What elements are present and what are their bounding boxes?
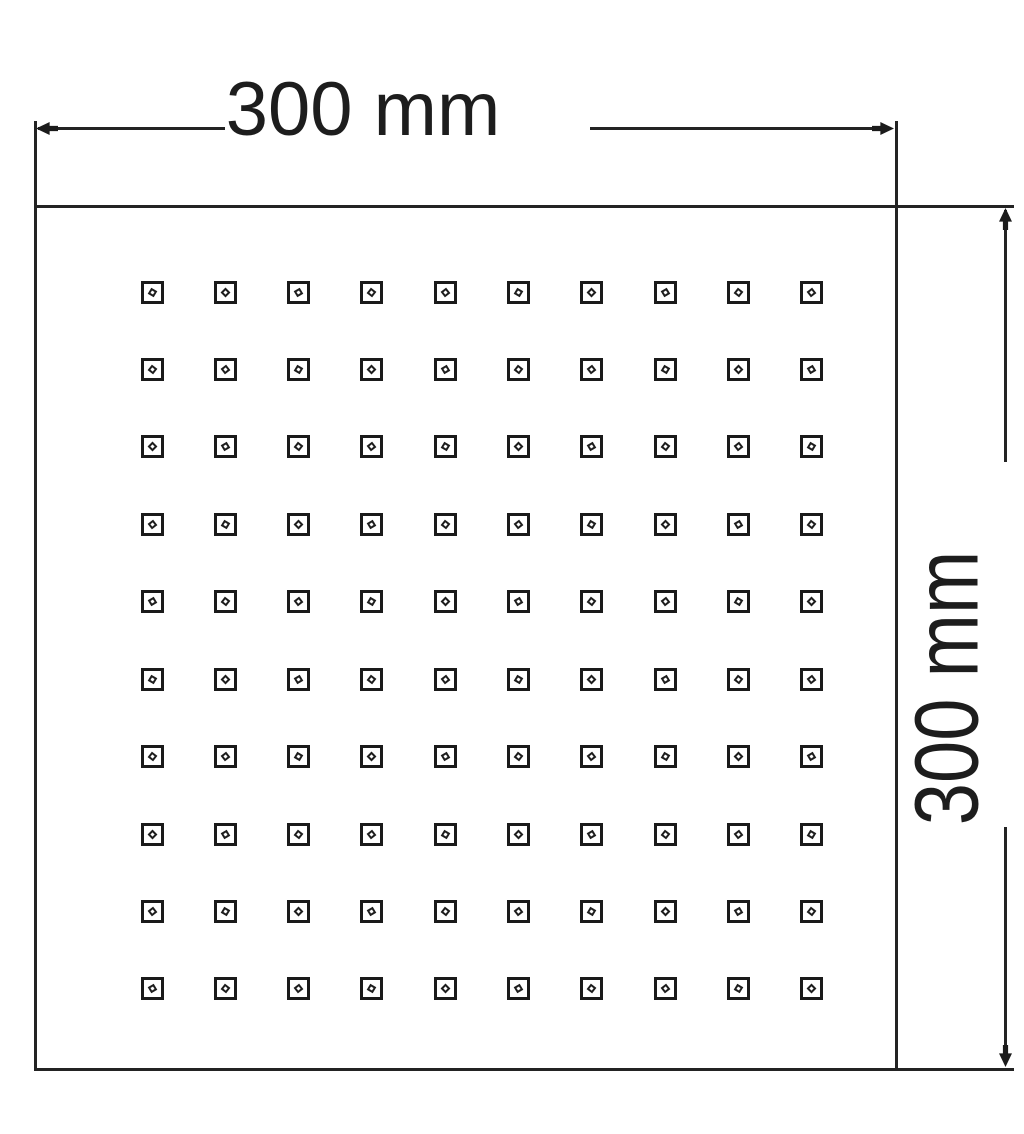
- nozzle: [580, 435, 603, 458]
- nozzle-orifice-icon: [587, 520, 597, 530]
- nozzle: [727, 668, 750, 691]
- nozzle: [141, 590, 164, 613]
- nozzle: [800, 435, 823, 458]
- nozzle-orifice-icon: [807, 984, 817, 994]
- nozzle-orifice-icon: [734, 287, 744, 297]
- nozzle: [580, 745, 603, 768]
- nozzle: [580, 900, 603, 923]
- nozzle-orifice-icon: [441, 365, 451, 375]
- nozzle-orifice-icon: [660, 287, 670, 297]
- nozzle-orifice-icon: [294, 984, 304, 994]
- nozzle-orifice-icon: [734, 364, 744, 374]
- nozzle-orifice-icon: [441, 752, 451, 762]
- nozzle-orifice-icon: [734, 442, 744, 452]
- nozzle: [434, 358, 457, 381]
- nozzle: [580, 513, 603, 536]
- nozzle: [214, 435, 237, 458]
- nozzle-orifice-icon: [807, 674, 817, 684]
- nozzle: [727, 590, 750, 613]
- nozzle: [800, 281, 823, 304]
- nozzle-orifice-icon: [660, 365, 670, 375]
- nozzle: [800, 745, 823, 768]
- nozzle-orifice-icon: [514, 984, 524, 994]
- nozzle: [141, 358, 164, 381]
- nozzle: [214, 513, 237, 536]
- nozzle: [800, 900, 823, 923]
- nozzle-orifice-icon: [294, 597, 304, 607]
- nozzle: [434, 435, 457, 458]
- nozzle-orifice-icon: [294, 287, 304, 297]
- nozzle: [654, 281, 677, 304]
- nozzle: [360, 513, 383, 536]
- nozzle-orifice-icon: [367, 364, 377, 374]
- nozzle: [287, 977, 310, 1000]
- nozzle-orifice-icon: [147, 519, 157, 529]
- nozzle: [214, 281, 237, 304]
- nozzle-orifice-icon: [147, 287, 157, 297]
- nozzle: [654, 358, 677, 381]
- nozzle-orifice-icon: [587, 674, 597, 684]
- nozzle: [580, 281, 603, 304]
- nozzle: [287, 435, 310, 458]
- nozzle: [287, 513, 310, 536]
- nozzle-orifice-icon: [660, 519, 670, 529]
- nozzle: [654, 977, 677, 1000]
- nozzle: [434, 823, 457, 846]
- nozzle-orifice-icon: [587, 829, 597, 839]
- nozzle-orifice-icon: [147, 365, 157, 375]
- nozzle-orifice-icon: [587, 442, 597, 452]
- nozzle: [287, 668, 310, 691]
- nozzle: [800, 668, 823, 691]
- nozzle-orifice-icon: [660, 442, 670, 452]
- nozzle: [580, 590, 603, 613]
- nozzle: [507, 900, 530, 923]
- nozzle: [654, 513, 677, 536]
- nozzle: [434, 900, 457, 923]
- nozzle: [507, 977, 530, 1000]
- nozzle-orifice-icon: [440, 984, 450, 994]
- nozzle-orifice-icon: [514, 442, 524, 452]
- nozzle-orifice-icon: [221, 907, 231, 917]
- nozzle-orifice-icon: [221, 520, 231, 530]
- nozzle: [214, 358, 237, 381]
- nozzle: [141, 745, 164, 768]
- nozzle: [800, 823, 823, 846]
- nozzle: [580, 668, 603, 691]
- nozzle: [800, 977, 823, 1000]
- nozzle-orifice-icon: [514, 907, 524, 917]
- nozzle-orifice-icon: [220, 365, 230, 375]
- nozzle-orifice-icon: [367, 674, 377, 684]
- nozzle: [434, 668, 457, 691]
- nozzle: [287, 590, 310, 613]
- nozzle-orifice-icon: [807, 829, 817, 839]
- nozzle: [214, 668, 237, 691]
- nozzle-orifice-icon: [440, 907, 450, 917]
- nozzle-orifice-icon: [441, 829, 451, 839]
- nozzle-orifice-icon: [294, 829, 304, 839]
- nozzle: [654, 435, 677, 458]
- nozzle: [654, 745, 677, 768]
- nozzle-orifice-icon: [220, 287, 230, 297]
- nozzle-orifice-icon: [440, 674, 450, 684]
- nozzle-orifice-icon: [514, 597, 524, 607]
- nozzle: [141, 435, 164, 458]
- nozzle-orifice-icon: [587, 907, 597, 917]
- nozzle: [360, 358, 383, 381]
- nozzle-orifice-icon: [514, 829, 524, 839]
- nozzle: [360, 668, 383, 691]
- nozzle-orifice-icon: [367, 520, 377, 530]
- nozzle-orifice-icon: [734, 674, 744, 684]
- nozzle: [287, 900, 310, 923]
- drawing-canvas: 300 mm 300 mm: [0, 0, 1024, 1134]
- nozzle-orifice-icon: [221, 829, 231, 839]
- nozzle-orifice-icon: [734, 907, 744, 917]
- nozzle: [507, 590, 530, 613]
- nozzle-orifice-icon: [220, 752, 230, 762]
- nozzle-orifice-icon: [660, 829, 670, 839]
- nozzle: [580, 823, 603, 846]
- nozzle-orifice-icon: [294, 365, 304, 375]
- nozzle: [727, 977, 750, 1000]
- nozzle: [360, 977, 383, 1000]
- nozzle: [141, 900, 164, 923]
- nozzle-orifice-icon: [147, 442, 157, 452]
- nozzle: [360, 900, 383, 923]
- nozzle: [141, 281, 164, 304]
- nozzle-orifice-icon: [587, 365, 597, 375]
- nozzle: [507, 745, 530, 768]
- nozzle-orifice-icon: [660, 984, 670, 994]
- nozzle-orifice-icon: [294, 674, 304, 684]
- nozzle-orifice-icon: [367, 984, 377, 994]
- nozzle-orifice-icon: [660, 752, 670, 762]
- nozzle: [727, 358, 750, 381]
- nozzle: [727, 900, 750, 923]
- nozzle: [580, 977, 603, 1000]
- nozzle: [360, 745, 383, 768]
- nozzle: [654, 668, 677, 691]
- nozzle: [434, 977, 457, 1000]
- nozzle: [727, 435, 750, 458]
- nozzle: [507, 823, 530, 846]
- nozzle: [141, 977, 164, 1000]
- nozzle-orifice-icon: [807, 907, 817, 917]
- nozzle: [360, 435, 383, 458]
- nozzle: [507, 513, 530, 536]
- nozzle-orifice-icon: [147, 829, 157, 839]
- nozzle-orifice-icon: [514, 287, 524, 297]
- nozzle-orifice-icon: [294, 752, 304, 762]
- nozzle-orifice-icon: [514, 674, 524, 684]
- nozzle: [287, 281, 310, 304]
- nozzle-grid: [0, 0, 1024, 1134]
- nozzle-orifice-icon: [587, 597, 597, 607]
- nozzle: [654, 900, 677, 923]
- nozzle-orifice-icon: [367, 442, 377, 452]
- nozzle: [434, 281, 457, 304]
- nozzle-orifice-icon: [367, 907, 377, 917]
- nozzle: [580, 358, 603, 381]
- nozzle: [141, 668, 164, 691]
- nozzle-orifice-icon: [660, 907, 670, 917]
- nozzle-orifice-icon: [220, 984, 230, 994]
- nozzle-orifice-icon: [147, 597, 157, 607]
- nozzle: [800, 590, 823, 613]
- nozzle-orifice-icon: [367, 597, 377, 607]
- nozzle-orifice-icon: [587, 752, 597, 762]
- nozzle-orifice-icon: [440, 287, 450, 297]
- nozzle-orifice-icon: [587, 287, 597, 297]
- nozzle: [727, 281, 750, 304]
- nozzle-orifice-icon: [734, 597, 744, 607]
- nozzle: [214, 823, 237, 846]
- nozzle-orifice-icon: [147, 907, 157, 917]
- nozzle-orifice-icon: [734, 829, 744, 839]
- nozzle-orifice-icon: [294, 519, 304, 529]
- nozzle: [287, 823, 310, 846]
- nozzle-orifice-icon: [660, 674, 670, 684]
- nozzle: [214, 900, 237, 923]
- nozzle-orifice-icon: [807, 597, 817, 607]
- nozzle-orifice-icon: [807, 752, 817, 762]
- nozzle: [141, 513, 164, 536]
- nozzle-orifice-icon: [221, 442, 231, 452]
- nozzle-orifice-icon: [807, 365, 817, 375]
- nozzle-orifice-icon: [294, 442, 304, 452]
- nozzle-orifice-icon: [220, 674, 230, 684]
- nozzle-orifice-icon: [734, 752, 744, 762]
- nozzle: [727, 823, 750, 846]
- nozzle: [287, 745, 310, 768]
- nozzle: [141, 823, 164, 846]
- nozzle-orifice-icon: [367, 829, 377, 839]
- nozzle: [727, 513, 750, 536]
- nozzle: [214, 745, 237, 768]
- nozzle: [654, 823, 677, 846]
- nozzle-orifice-icon: [807, 442, 817, 452]
- nozzle-orifice-icon: [807, 287, 817, 297]
- nozzle-orifice-icon: [660, 597, 670, 607]
- nozzle-orifice-icon: [220, 597, 230, 607]
- nozzle: [360, 281, 383, 304]
- nozzle: [360, 590, 383, 613]
- nozzle-orifice-icon: [367, 752, 377, 762]
- nozzle: [360, 823, 383, 846]
- nozzle: [434, 513, 457, 536]
- nozzle: [507, 435, 530, 458]
- nozzle: [507, 358, 530, 381]
- nozzle: [434, 745, 457, 768]
- nozzle-orifice-icon: [734, 520, 744, 530]
- nozzle-orifice-icon: [147, 752, 157, 762]
- nozzle-orifice-icon: [514, 365, 524, 375]
- nozzle-orifice-icon: [441, 442, 451, 452]
- nozzle-orifice-icon: [440, 597, 450, 607]
- nozzle-orifice-icon: [367, 287, 377, 297]
- nozzle-orifice-icon: [807, 519, 817, 529]
- nozzle: [214, 977, 237, 1000]
- nozzle: [287, 358, 310, 381]
- nozzle: [507, 281, 530, 304]
- nozzle: [214, 590, 237, 613]
- nozzle-orifice-icon: [587, 984, 597, 994]
- nozzle-orifice-icon: [440, 519, 450, 529]
- nozzle-orifice-icon: [294, 907, 304, 917]
- nozzle: [507, 668, 530, 691]
- nozzle-orifice-icon: [514, 752, 524, 762]
- nozzle: [800, 358, 823, 381]
- nozzle: [727, 745, 750, 768]
- nozzle: [800, 513, 823, 536]
- nozzle: [434, 590, 457, 613]
- nozzle-orifice-icon: [514, 519, 524, 529]
- nozzle-orifice-icon: [734, 984, 744, 994]
- nozzle: [654, 590, 677, 613]
- nozzle-orifice-icon: [147, 674, 157, 684]
- nozzle-orifice-icon: [147, 984, 157, 994]
